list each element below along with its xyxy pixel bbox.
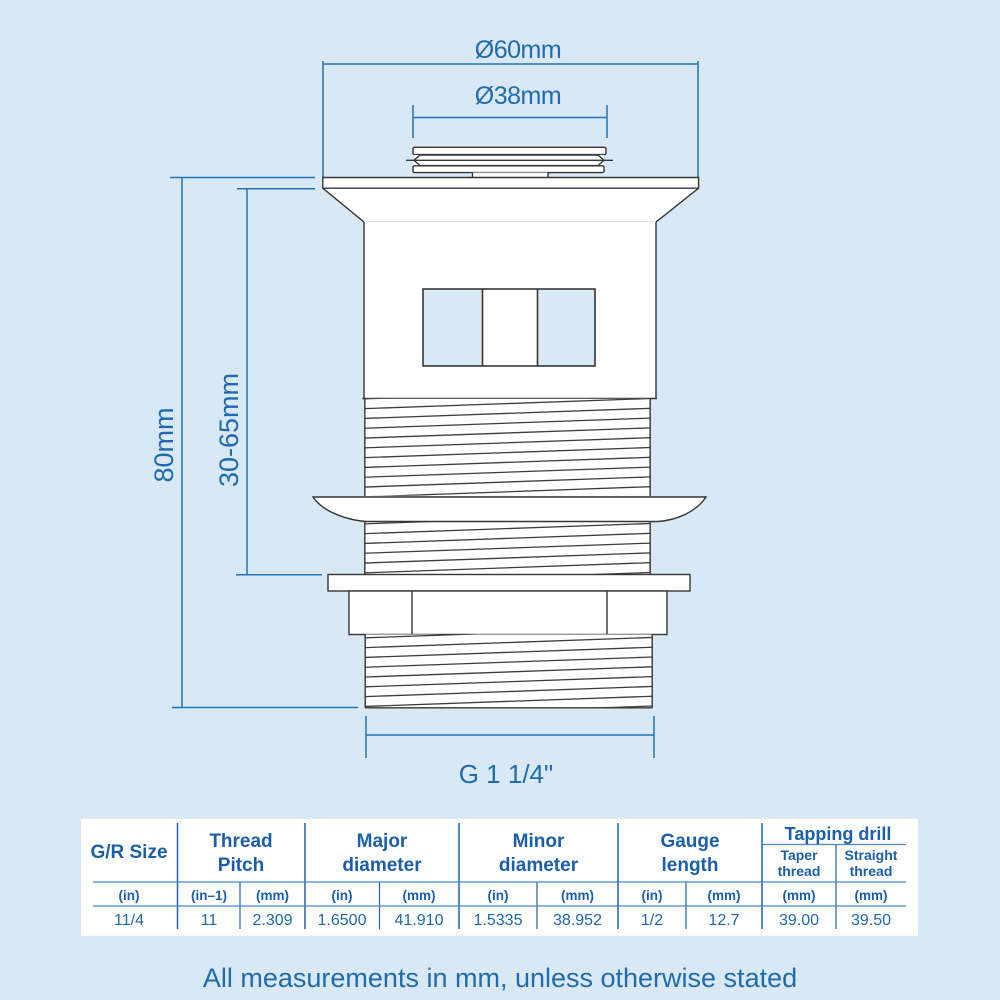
svg-text:Thread: Thread (209, 831, 272, 852)
svg-text:39.00: 39.00 (779, 912, 819, 929)
svg-text:thread: thread (850, 863, 893, 879)
svg-text:G 1 1/4": G 1 1/4" (459, 759, 554, 789)
svg-text:(in): (in) (642, 888, 663, 903)
svg-text:80mm: 80mm (149, 407, 179, 482)
svg-text:Gauge: Gauge (660, 831, 719, 852)
svg-text:(mm): (mm) (561, 888, 594, 903)
svg-text:11: 11 (201, 912, 218, 929)
svg-text:(in): (in) (488, 888, 509, 903)
svg-text:1.5335: 1.5335 (474, 912, 523, 929)
svg-text:(in): (in) (119, 888, 140, 903)
svg-text:length: length (662, 855, 719, 876)
svg-text:11/4: 11/4 (114, 912, 144, 929)
svg-text:diameter: diameter (499, 855, 579, 876)
svg-text:G/R Size: G/R Size (90, 842, 167, 863)
svg-text:1.6500: 1.6500 (318, 912, 367, 929)
svg-text:Major: Major (357, 831, 408, 852)
svg-text:39.50: 39.50 (851, 912, 891, 929)
svg-text:Ø60mm: Ø60mm (475, 36, 561, 64)
svg-text:All measurements in mm, unless: All measurements in mm, unless otherwise… (203, 963, 797, 993)
svg-text:38.952: 38.952 (553, 912, 602, 929)
svg-text:thread: thread (778, 863, 821, 879)
svg-text:(mm): (mm) (403, 888, 436, 903)
svg-text:30-65mm: 30-65mm (214, 373, 244, 487)
svg-text:(mm): (mm) (708, 888, 741, 903)
svg-text:(mm): (mm) (256, 888, 289, 903)
svg-text:1/2: 1/2 (641, 912, 663, 929)
svg-text:diameter: diameter (342, 855, 422, 876)
svg-text:Taper: Taper (780, 847, 818, 863)
svg-text:Straight: Straight (845, 847, 898, 863)
svg-text:12.7: 12.7 (708, 912, 739, 929)
svg-text:Tapping drill: Tapping drill (785, 824, 892, 844)
svg-text:41.910: 41.910 (395, 912, 444, 929)
svg-text:2.309: 2.309 (252, 912, 292, 929)
svg-text:Pitch: Pitch (218, 855, 264, 876)
svg-text:Minor: Minor (513, 831, 565, 852)
svg-text:Ø38mm: Ø38mm (475, 82, 561, 110)
svg-text:(in): (in) (332, 888, 353, 903)
svg-text:(mm): (mm) (855, 888, 888, 903)
svg-text:(in–1): (in–1) (191, 888, 227, 903)
svg-text:(mm): (mm) (783, 888, 816, 903)
